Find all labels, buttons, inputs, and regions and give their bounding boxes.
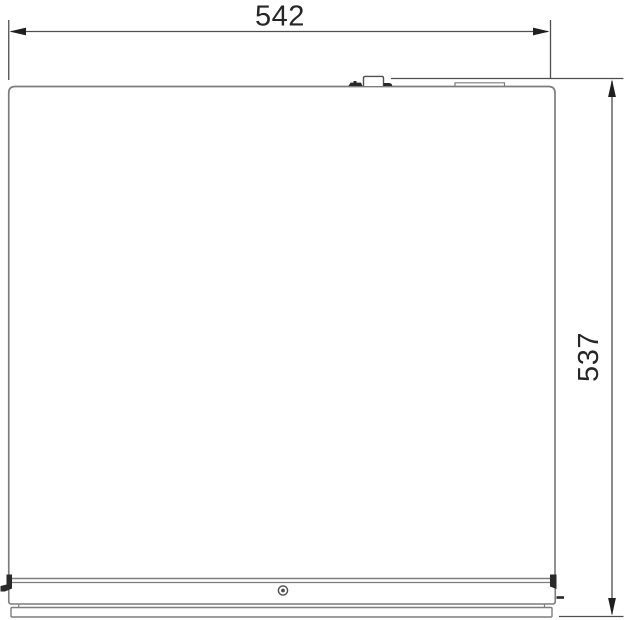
latch-left-tab [349, 81, 363, 86]
hinge-right [550, 575, 557, 590]
latch-right-foot [384, 83, 393, 86]
technical-drawing: 542 537 [0, 0, 625, 620]
width-dimension: 542 [9, 1, 551, 81]
width-dimension-label: 542 [255, 1, 305, 33]
arrow-right-icon [533, 28, 550, 36]
panel-body-group [1, 76, 565, 617]
screw-center-dot [281, 589, 285, 593]
height-dimension-label: 537 [573, 332, 605, 382]
hinge-left [1, 575, 13, 592]
panel-outline [9, 87, 555, 579]
latch-knob [364, 76, 384, 86]
arrow-up-icon [608, 80, 616, 98]
plinth-strip [11, 608, 552, 618]
arrow-left-icon [10, 28, 27, 36]
drawing-canvas: 542 537 [0, 0, 625, 620]
arrow-down-icon [608, 598, 616, 616]
top-tab [455, 83, 505, 86]
height-dimension: 537 [391, 79, 624, 617]
